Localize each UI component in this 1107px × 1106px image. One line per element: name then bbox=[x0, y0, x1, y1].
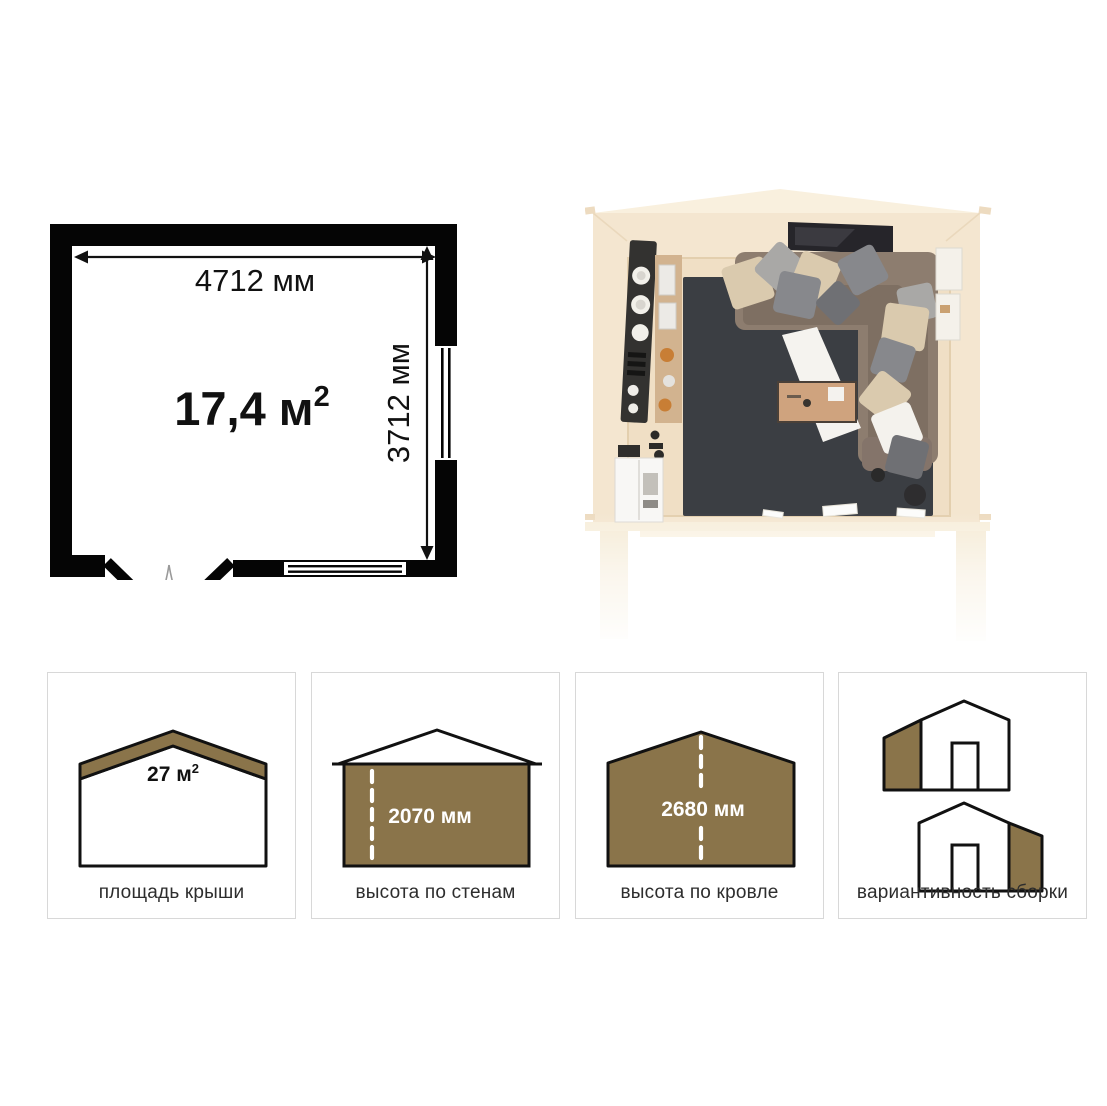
product-spec-sheet: 4712 мм 3712 мм 17,4 м2 bbox=[0, 0, 1107, 1106]
roof-area-sup: 2 bbox=[192, 761, 199, 776]
card-assembly-variants-label: вариантивность сборки bbox=[839, 882, 1086, 904]
variant-house-left-extension bbox=[884, 701, 1009, 790]
wall-height-value: 2070 мм bbox=[388, 805, 472, 828]
side-extension bbox=[884, 720, 921, 790]
roof-area-value: 27 м2 bbox=[147, 761, 199, 786]
variant-house-right-extension bbox=[919, 803, 1042, 891]
ridge-height-value: 2680 мм bbox=[661, 798, 745, 821]
side-extension bbox=[1009, 823, 1042, 891]
card-wall-height-label: высота по стенам bbox=[312, 882, 559, 904]
card-roof-area-label: площадь крыши bbox=[48, 882, 295, 904]
roof-area-number: 27 м bbox=[147, 763, 192, 786]
door bbox=[952, 743, 978, 790]
card-assembly-variants: вариантивность сборки bbox=[838, 672, 1087, 919]
card-wall-height: 2070 мм высота по стенам bbox=[311, 672, 560, 919]
card-ridge-height: 2680 мм высота по кровле bbox=[575, 672, 824, 919]
card-roof-area: 27 м2 площадь крыши bbox=[47, 672, 296, 919]
spec-cards: 27 м2 площадь крыши 2070 мм высота по ст… bbox=[0, 0, 1107, 1106]
card-ridge-height-label: высота по кровле bbox=[576, 882, 823, 904]
roof-outline bbox=[338, 730, 536, 764]
